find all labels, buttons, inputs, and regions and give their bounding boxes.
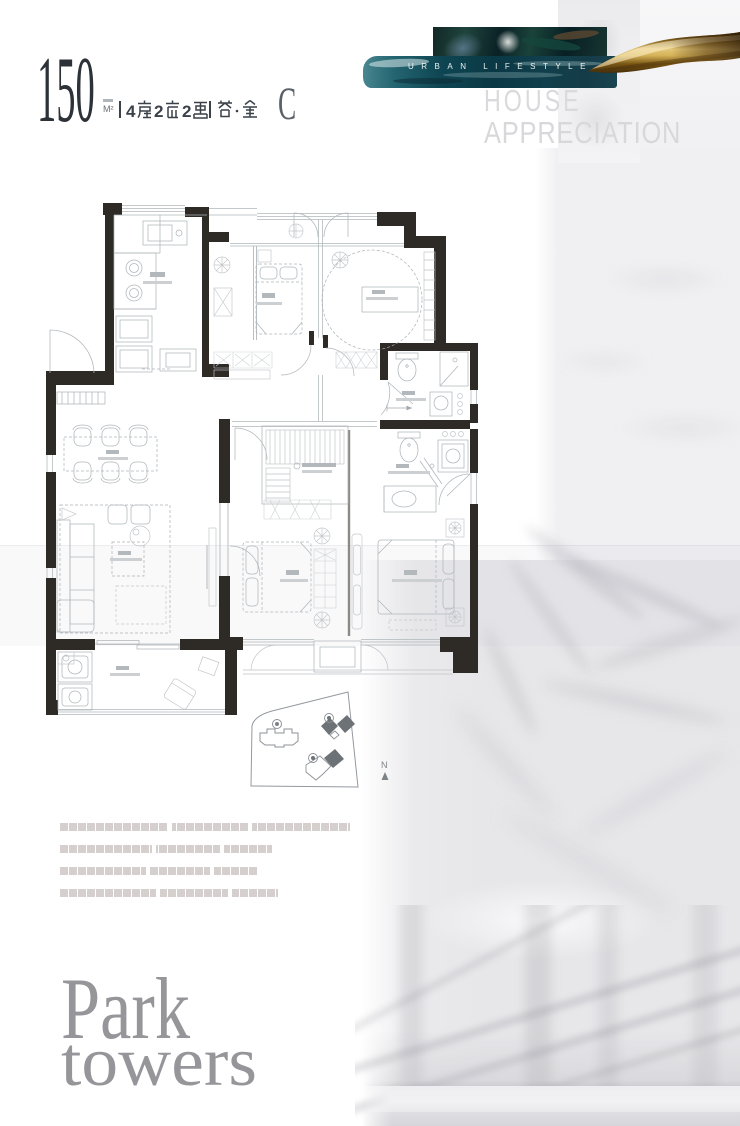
svg-text:N: N	[381, 760, 388, 770]
